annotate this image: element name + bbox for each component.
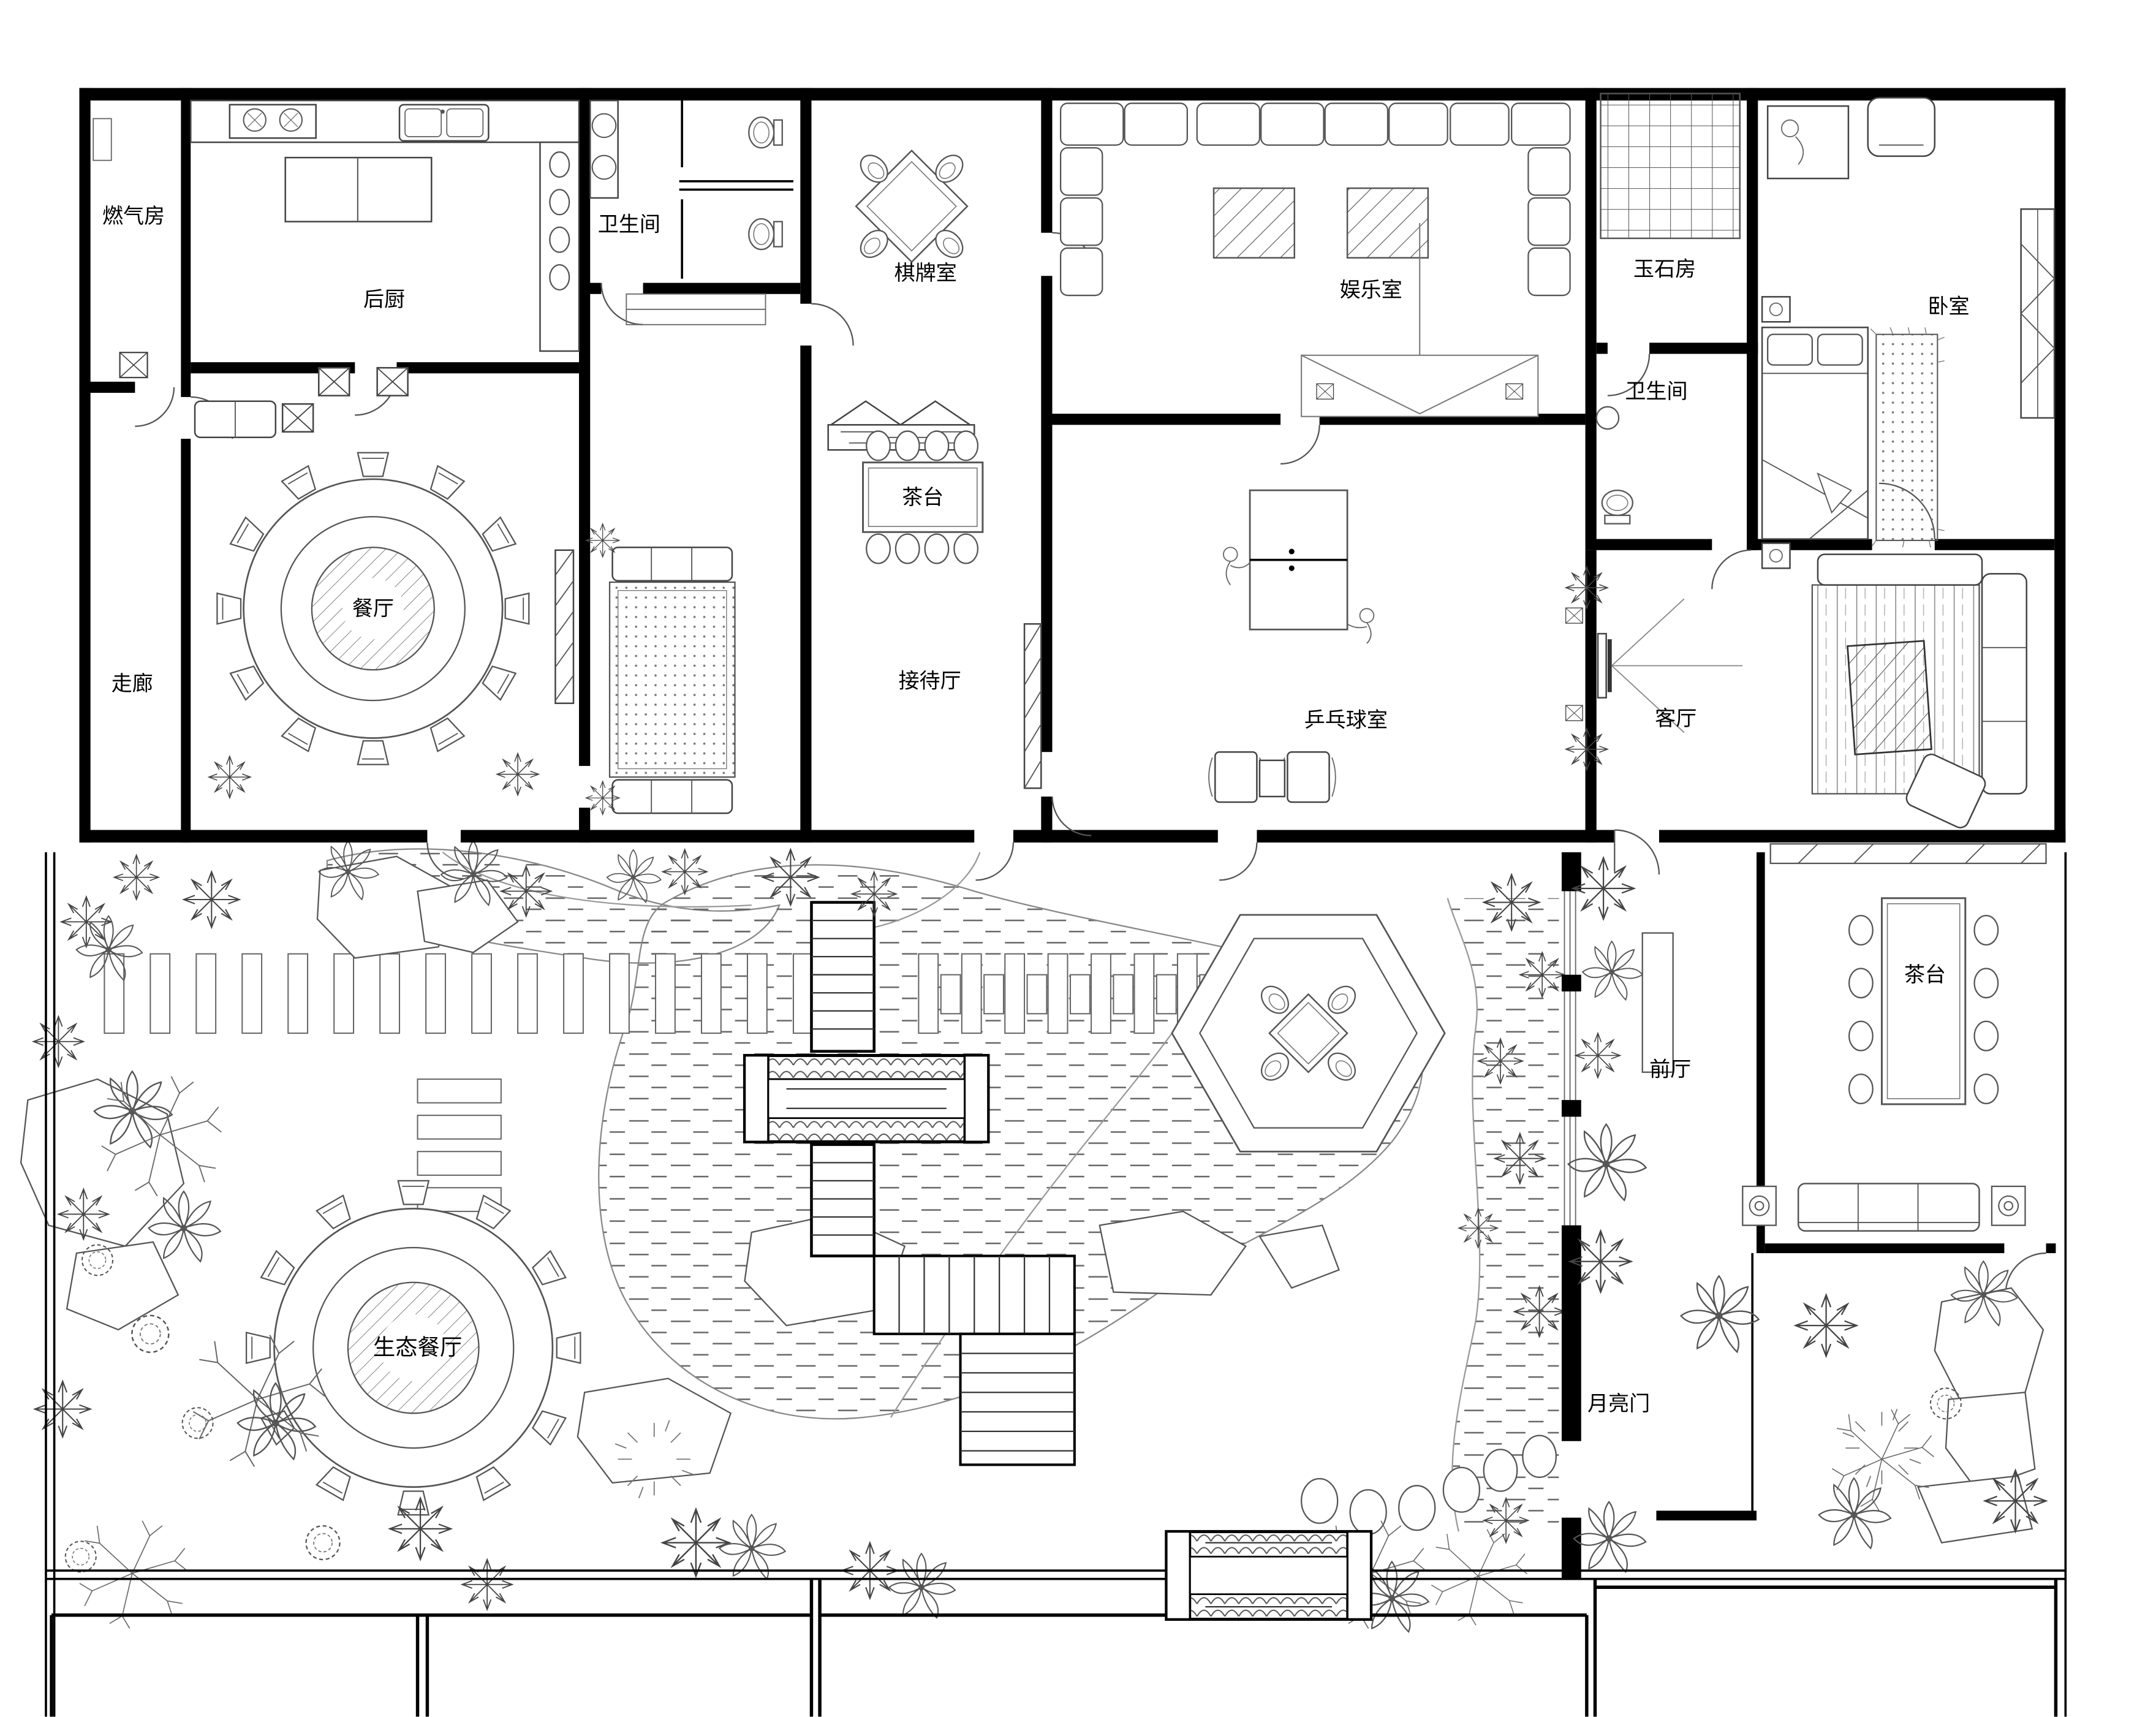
room-label-bath-right: 卫生间 (1625, 379, 1687, 404)
hall-bookshelf (1024, 624, 1041, 788)
tea-room (1742, 844, 2046, 1231)
bathroom-right (1597, 407, 1633, 524)
reception-lounge (586, 524, 735, 815)
room-label-jade: 玉石房 (1633, 257, 1696, 281)
room-label-chess: 棋牌室 (895, 261, 957, 286)
courtyard (1681, 1261, 2046, 1548)
player-icon (1224, 547, 1250, 585)
room-label-entertainment: 娱乐室 (1340, 278, 1402, 302)
room-label-reception: 接待厅 (898, 669, 961, 694)
bottom-rooms (51, 1579, 2056, 1717)
covered-gate (744, 1055, 988, 1142)
foyer-area (1568, 858, 1673, 1572)
room-label-living: 客厅 (1655, 707, 1696, 731)
sectional-sofa (1061, 104, 1570, 296)
wardrobe (2021, 209, 2055, 418)
room-label-foyer: 前厅 (1649, 1058, 1691, 1082)
room-label-eco-dining: 生态餐厅 (373, 1334, 462, 1360)
room-label-corridor: 走廊 (112, 672, 153, 696)
kitchen-island (286, 157, 432, 222)
bed (1762, 327, 1868, 539)
right-wing (1562, 844, 2056, 1579)
jade-room-furniture (1601, 94, 1740, 238)
room-label-dining: 餐厅 (352, 597, 394, 621)
bedroom-furniture (1762, 97, 2054, 568)
plank-bridge-upper (811, 903, 874, 1052)
foyer-window-wall (1562, 852, 1581, 1579)
kitchen-sink-icon (399, 105, 488, 141)
room-label-tea-hall: 茶台 (902, 485, 944, 510)
room-label-moon-gate: 月亮门 (1587, 1392, 1650, 1416)
room-label-pingpong: 乒乓球室 (1304, 708, 1388, 732)
room-label-tea-east: 茶台 (1904, 963, 1946, 987)
tea-room-sofa (1798, 1183, 1979, 1230)
waiting-chairs (1209, 752, 1336, 802)
pingpong-furniture (1209, 490, 1374, 802)
room-label-bath-top: 卫生间 (598, 213, 660, 237)
garden (21, 841, 1564, 1632)
living-sofa-set (1812, 555, 2027, 830)
living-furniture (1566, 555, 2027, 830)
projection-area (1301, 223, 1538, 417)
entertainment-furniture (1061, 104, 1570, 417)
planter-column (418, 1079, 501, 1211)
floor-plan: 燃气房 后厨 卫生间 棋牌室 娱乐室 玉石房 卧室 卫生间 餐厅 走廊 茶台 接… (0, 0, 2156, 1717)
stove-icon (230, 105, 316, 138)
kitchen-furniture (93, 100, 579, 396)
entrance-gate (1167, 1531, 1371, 1619)
room-label-kitchen: 后厨 (363, 287, 405, 312)
room-label-gas: 燃气房 (102, 204, 165, 229)
room-label-bedroom: 卧室 (1927, 295, 1969, 319)
dining-cabinet (555, 550, 573, 703)
bedroom-rug (1870, 327, 1944, 547)
plank-bridge-lower (811, 1145, 874, 1256)
player-icon (1347, 608, 1374, 643)
chess-room-furniture (855, 150, 968, 263)
